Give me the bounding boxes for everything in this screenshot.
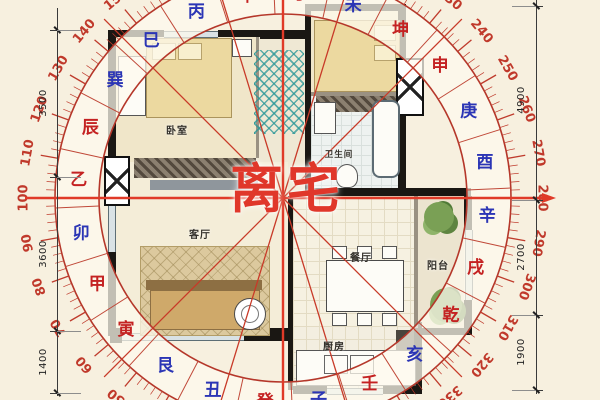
dimension-mark xyxy=(512,6,536,7)
dimension-mark xyxy=(57,331,81,332)
dimension-label-left: 1400 xyxy=(38,342,50,382)
house-type-label: 离宅 xyxy=(219,160,355,222)
dimension-mark xyxy=(512,390,536,391)
dimension-mark xyxy=(512,200,536,201)
dimension-label-right: 2700 xyxy=(516,237,528,277)
dimension-mark xyxy=(57,30,81,31)
dimension-line-right xyxy=(536,0,537,394)
dimension-mark xyxy=(512,315,536,316)
dimension-mark xyxy=(57,177,81,178)
feng-shui-floorplan: 卧室 卫生间 客厅 餐厅 阳台 厨房 506070809010011012013… xyxy=(0,0,600,400)
dimension-label-right: 1900 xyxy=(516,332,528,372)
dimension-line-left xyxy=(57,8,58,396)
dimension-label-right: 4900 xyxy=(516,80,528,120)
dimension-label-left: 3500 xyxy=(38,83,50,123)
dimension-label-left: 3600 xyxy=(38,234,50,274)
dimension-mark xyxy=(57,393,81,394)
